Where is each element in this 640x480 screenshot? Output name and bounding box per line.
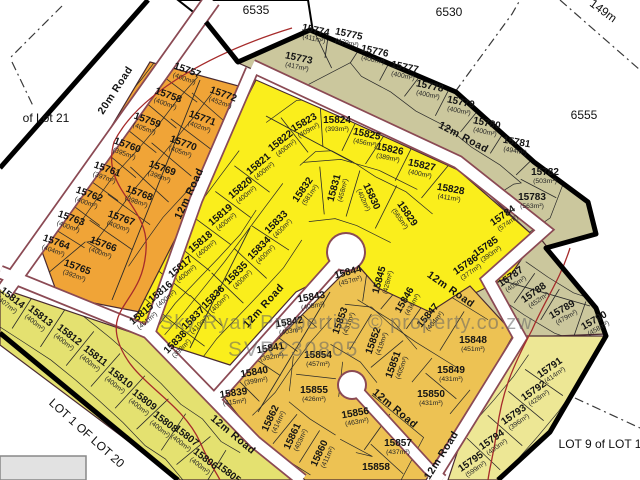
cadastral-dash-line-3 <box>455 0 520 92</box>
lot-15850: 15850(431m²) <box>417 389 445 407</box>
lot-number: 15854 <box>304 350 332 361</box>
lot-15783: 15783(563m²) <box>518 192 546 210</box>
lot-number: 15824 <box>323 115 351 126</box>
lot-number: 15783 <box>518 192 546 203</box>
lot-number: 15850 <box>417 389 445 400</box>
parcel-label-lot-9-of-lot-1: LOT 9 of LOT 1 <box>559 437 640 451</box>
parcel-label-6530: 6530 <box>436 5 463 19</box>
lot-15855: 15855(426m²) <box>300 385 328 403</box>
lot-15782: 15782(503m²) <box>531 167 559 185</box>
lot-15848: 15848(451m²) <box>459 335 487 353</box>
parcel-label-6535: 6535 <box>243 3 270 17</box>
parcel-label-149m: 149m <box>587 0 620 25</box>
lot-15858: 15858 <box>362 462 390 473</box>
lot-number: 15857 <box>384 438 412 449</box>
lot-number: 15855 <box>300 385 328 396</box>
lot-number: 15858 <box>362 462 390 473</box>
survey-map: 15757(400m²)15758(400m²)15759(405m²)1576… <box>0 0 640 480</box>
lot-15857: 15857(437m²) <box>384 438 412 456</box>
parcel-label-of-lot-21: of Lot 21 <box>23 111 70 125</box>
lot-15849: 15849(431m²) <box>437 365 465 383</box>
lot-area: (393m²) <box>325 126 349 133</box>
lot-15854: 15854(457m²) <box>304 350 332 368</box>
cadastral-dash-line-5 <box>575 398 640 428</box>
lot-area: (431m²) <box>439 376 463 383</box>
cul-de-sac-2 <box>339 372 365 398</box>
lot-area: (426m²) <box>302 396 326 403</box>
lot-number: 15782 <box>531 167 559 178</box>
lot-area: (431m²) <box>419 400 443 407</box>
parcel-label-6555: 6555 <box>571 108 598 122</box>
lot-area: (457m²) <box>306 361 330 368</box>
lot-area: (451m²) <box>461 346 485 353</box>
cadastral-dash-line-2 <box>12 62 34 108</box>
lot-number: 15848 <box>459 335 487 346</box>
lot-number: 15849 <box>437 365 465 376</box>
lot-area: (563m²) <box>520 203 544 210</box>
lot-15824: 15824(393m²) <box>323 115 351 133</box>
lot-area: (437m²) <box>386 449 410 456</box>
corner-inset-box <box>0 456 86 480</box>
lot-area: (503m²) <box>533 178 557 185</box>
cadastral-dash-line-1 <box>10 6 62 58</box>
map-canvas: 15757(400m²)15758(400m²)15759(405m²)1576… <box>0 0 640 480</box>
